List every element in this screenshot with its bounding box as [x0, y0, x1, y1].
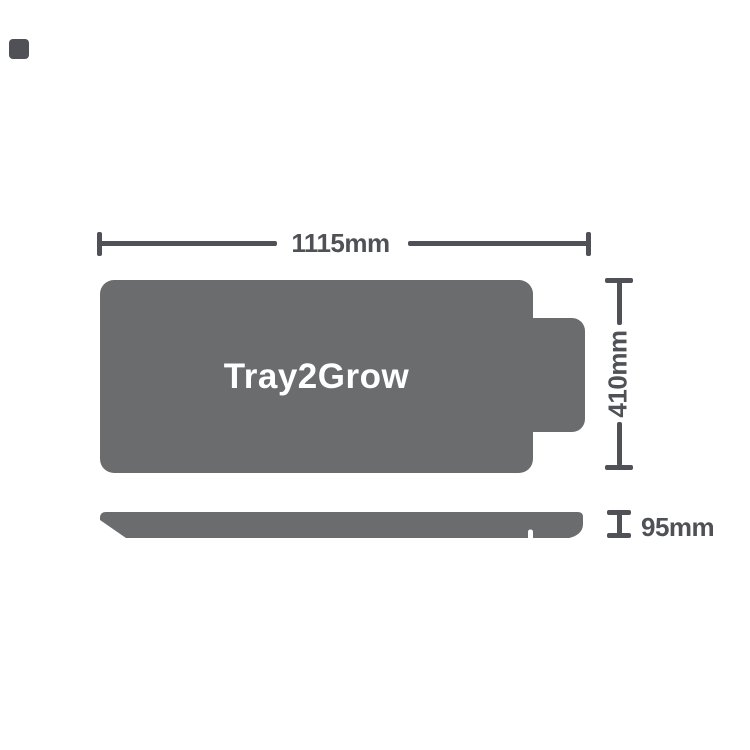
height-dimension-bottom-line — [617, 422, 622, 466]
width-dimension-right-line — [408, 241, 588, 246]
height-dimension-top-line — [617, 278, 622, 325]
height-dimension-label: 410mm — [603, 330, 634, 417]
tray-side-tab — [525, 318, 585, 432]
width-dimension-left-line — [97, 241, 277, 246]
depth-dimension-bottom-tick — [607, 533, 631, 538]
corner-mark-icon — [9, 39, 29, 59]
depth-dimension-label: 95mm — [641, 512, 714, 543]
width-dimension-label: 1115mm — [283, 230, 398, 256]
height-dimension-bottom-tick — [605, 465, 633, 470]
product-name: Tray2Grow — [224, 357, 409, 397]
width-dimension-right-tick — [586, 232, 591, 256]
tray-side-view — [97, 508, 589, 542]
tray-side-view-shape — [100, 512, 583, 538]
tray-top-view: Tray2Grow — [100, 280, 533, 473]
product-dimension-diagram: 1115mm Tray2Grow 410mm 95mm — [0, 0, 750, 750]
